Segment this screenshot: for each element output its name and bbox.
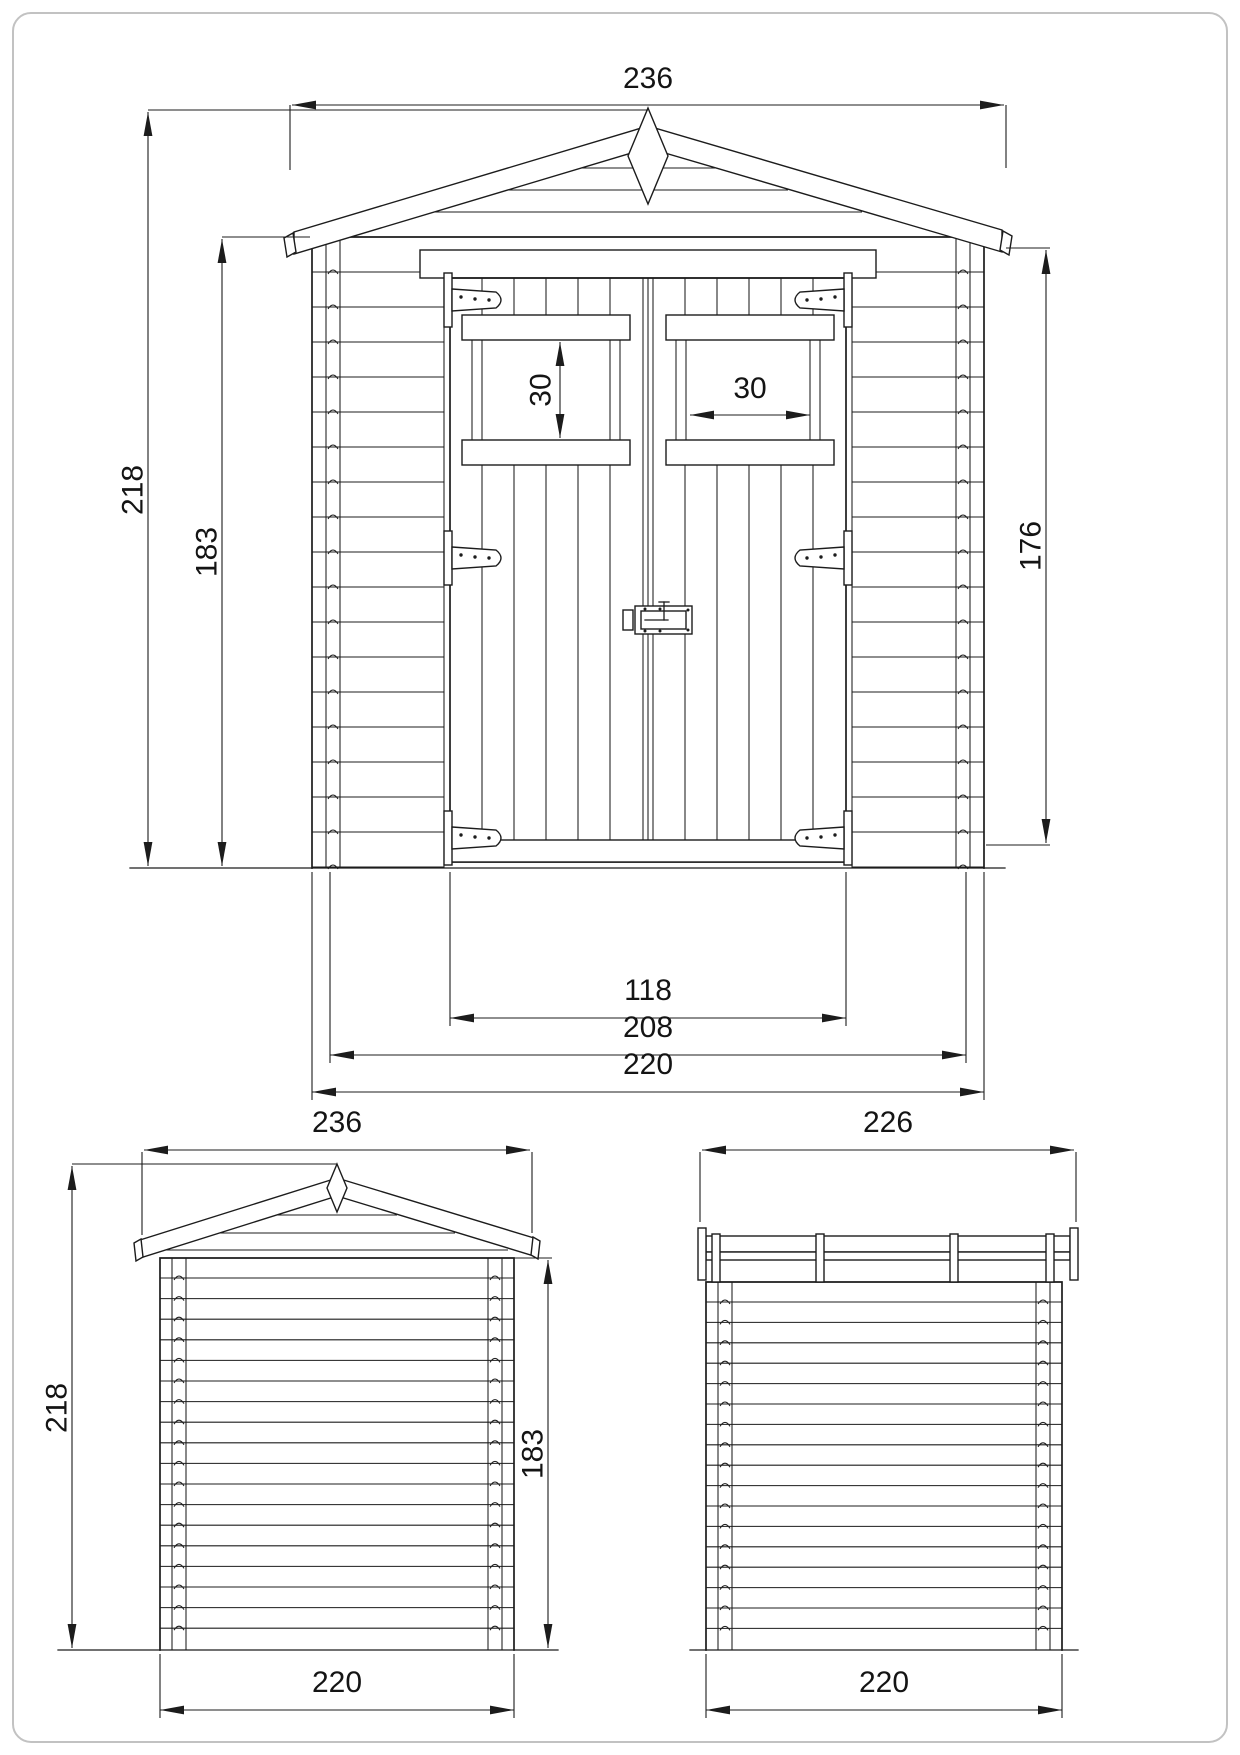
right-door-upper-planks bbox=[685, 278, 813, 315]
side-roof-purlin bbox=[1046, 1234, 1054, 1282]
right-door-lower-planks bbox=[685, 465, 813, 840]
dim-rear-wall-height: 183 bbox=[514, 1258, 552, 1648]
side-roof-fascia bbox=[706, 1252, 1070, 1260]
dim-side-roof-depth-text: 226 bbox=[863, 1106, 913, 1139]
left-door-lower-planks bbox=[482, 465, 610, 840]
side-roof-endcap-left bbox=[698, 1228, 706, 1280]
door-lock-bolt bbox=[623, 602, 692, 634]
dim-front-inner-width-text: 208 bbox=[623, 1011, 673, 1044]
side-wall-planks bbox=[706, 1302, 1062, 1628]
dim-window-height-text: 30 bbox=[525, 373, 558, 406]
dim-rear-base-width-text: 220 bbox=[312, 1666, 362, 1699]
dim-rear-base-width: 220 bbox=[160, 1654, 514, 1718]
left-window-top-rail bbox=[462, 315, 630, 340]
dim-rear-roof-width-text: 236 bbox=[312, 1106, 362, 1139]
rear-left-corner-joint bbox=[172, 1258, 186, 1650]
dim-front-door-width: 118 bbox=[450, 872, 846, 1026]
side-right-corner-joint bbox=[1036, 1282, 1050, 1650]
front-left-corner-joint bbox=[326, 237, 340, 869]
front-double-doors bbox=[450, 278, 846, 862]
front-view: 30 30 bbox=[117, 62, 1051, 1100]
drawing-page: 30 30 bbox=[0, 0, 1240, 1755]
side-roof-deck bbox=[706, 1236, 1070, 1252]
dim-front-wall-height: 183 bbox=[191, 237, 311, 866]
front-roof bbox=[284, 108, 1012, 257]
front-door-header-board bbox=[420, 250, 876, 278]
right-window-bottom-rail bbox=[666, 440, 834, 465]
front-right-wall-planks bbox=[852, 272, 984, 867]
left-door-upper-planks bbox=[482, 278, 610, 315]
rear-right-corner-joint bbox=[488, 1258, 502, 1650]
side-roof-endcap-right bbox=[1070, 1228, 1078, 1280]
hinge-left-middle bbox=[444, 531, 501, 585]
dim-front-right-wall-height: 176 bbox=[986, 248, 1050, 845]
door-bottom-rail bbox=[451, 840, 845, 862]
dim-front-roof-width-text: 236 bbox=[623, 62, 673, 95]
rear-diamond-finial bbox=[327, 1164, 347, 1212]
dim-front-door-width-text: 118 bbox=[624, 974, 672, 1007]
rear-roof-board-left bbox=[140, 1178, 337, 1258]
right-window-top-rail bbox=[666, 315, 834, 340]
left-window-bottom-rail bbox=[462, 440, 630, 465]
rear-roof-endcap-left bbox=[134, 1239, 143, 1261]
rear-roof-board-right bbox=[337, 1178, 534, 1256]
dim-side-base-depth-text: 220 bbox=[859, 1666, 909, 1699]
rear-roof bbox=[134, 1164, 540, 1261]
dim-window-height: 30 bbox=[525, 342, 561, 438]
rear-roof-endcap-right bbox=[531, 1237, 540, 1259]
dim-front-inner-width: 208 bbox=[330, 872, 966, 1063]
dim-rear-total-height-text: 218 bbox=[41, 1383, 74, 1433]
shed-technical-drawing: 30 30 bbox=[0, 0, 1240, 1755]
dim-side-base-depth: 220 bbox=[706, 1654, 1062, 1718]
front-roof-board-right bbox=[648, 126, 1002, 252]
hinge-right-middle bbox=[795, 531, 852, 585]
dim-front-total-height-text: 218 bbox=[117, 465, 150, 515]
rear-wall-outline bbox=[160, 1258, 514, 1650]
side-roof-edge bbox=[698, 1228, 1078, 1282]
side-roof-purlin bbox=[816, 1234, 824, 1282]
dim-front-right-wall-height-text: 176 bbox=[1015, 521, 1048, 571]
dim-window-width-text: 30 bbox=[733, 372, 766, 405]
dim-front-base-width-text: 220 bbox=[623, 1048, 673, 1081]
dim-side-roof-depth: 226 bbox=[700, 1106, 1076, 1222]
side-view: 226 220 bbox=[690, 1106, 1078, 1718]
side-wall-outline bbox=[706, 1282, 1062, 1650]
side-roof-purlin bbox=[950, 1234, 958, 1282]
dim-window-width: 30 bbox=[690, 372, 810, 415]
dim-front-wall-height-text: 183 bbox=[191, 527, 224, 577]
rear-wall-planks bbox=[160, 1278, 514, 1628]
side-roof-purlin bbox=[712, 1234, 720, 1282]
dim-rear-wall-height-text: 183 bbox=[517, 1429, 550, 1479]
front-roof-endcap-right bbox=[1000, 231, 1012, 255]
rear-view: 236 218 183 220 bbox=[41, 1106, 559, 1718]
front-right-corner-joint bbox=[956, 237, 970, 869]
side-left-corner-joint bbox=[718, 1282, 732, 1650]
front-left-wall-planks bbox=[312, 272, 444, 867]
